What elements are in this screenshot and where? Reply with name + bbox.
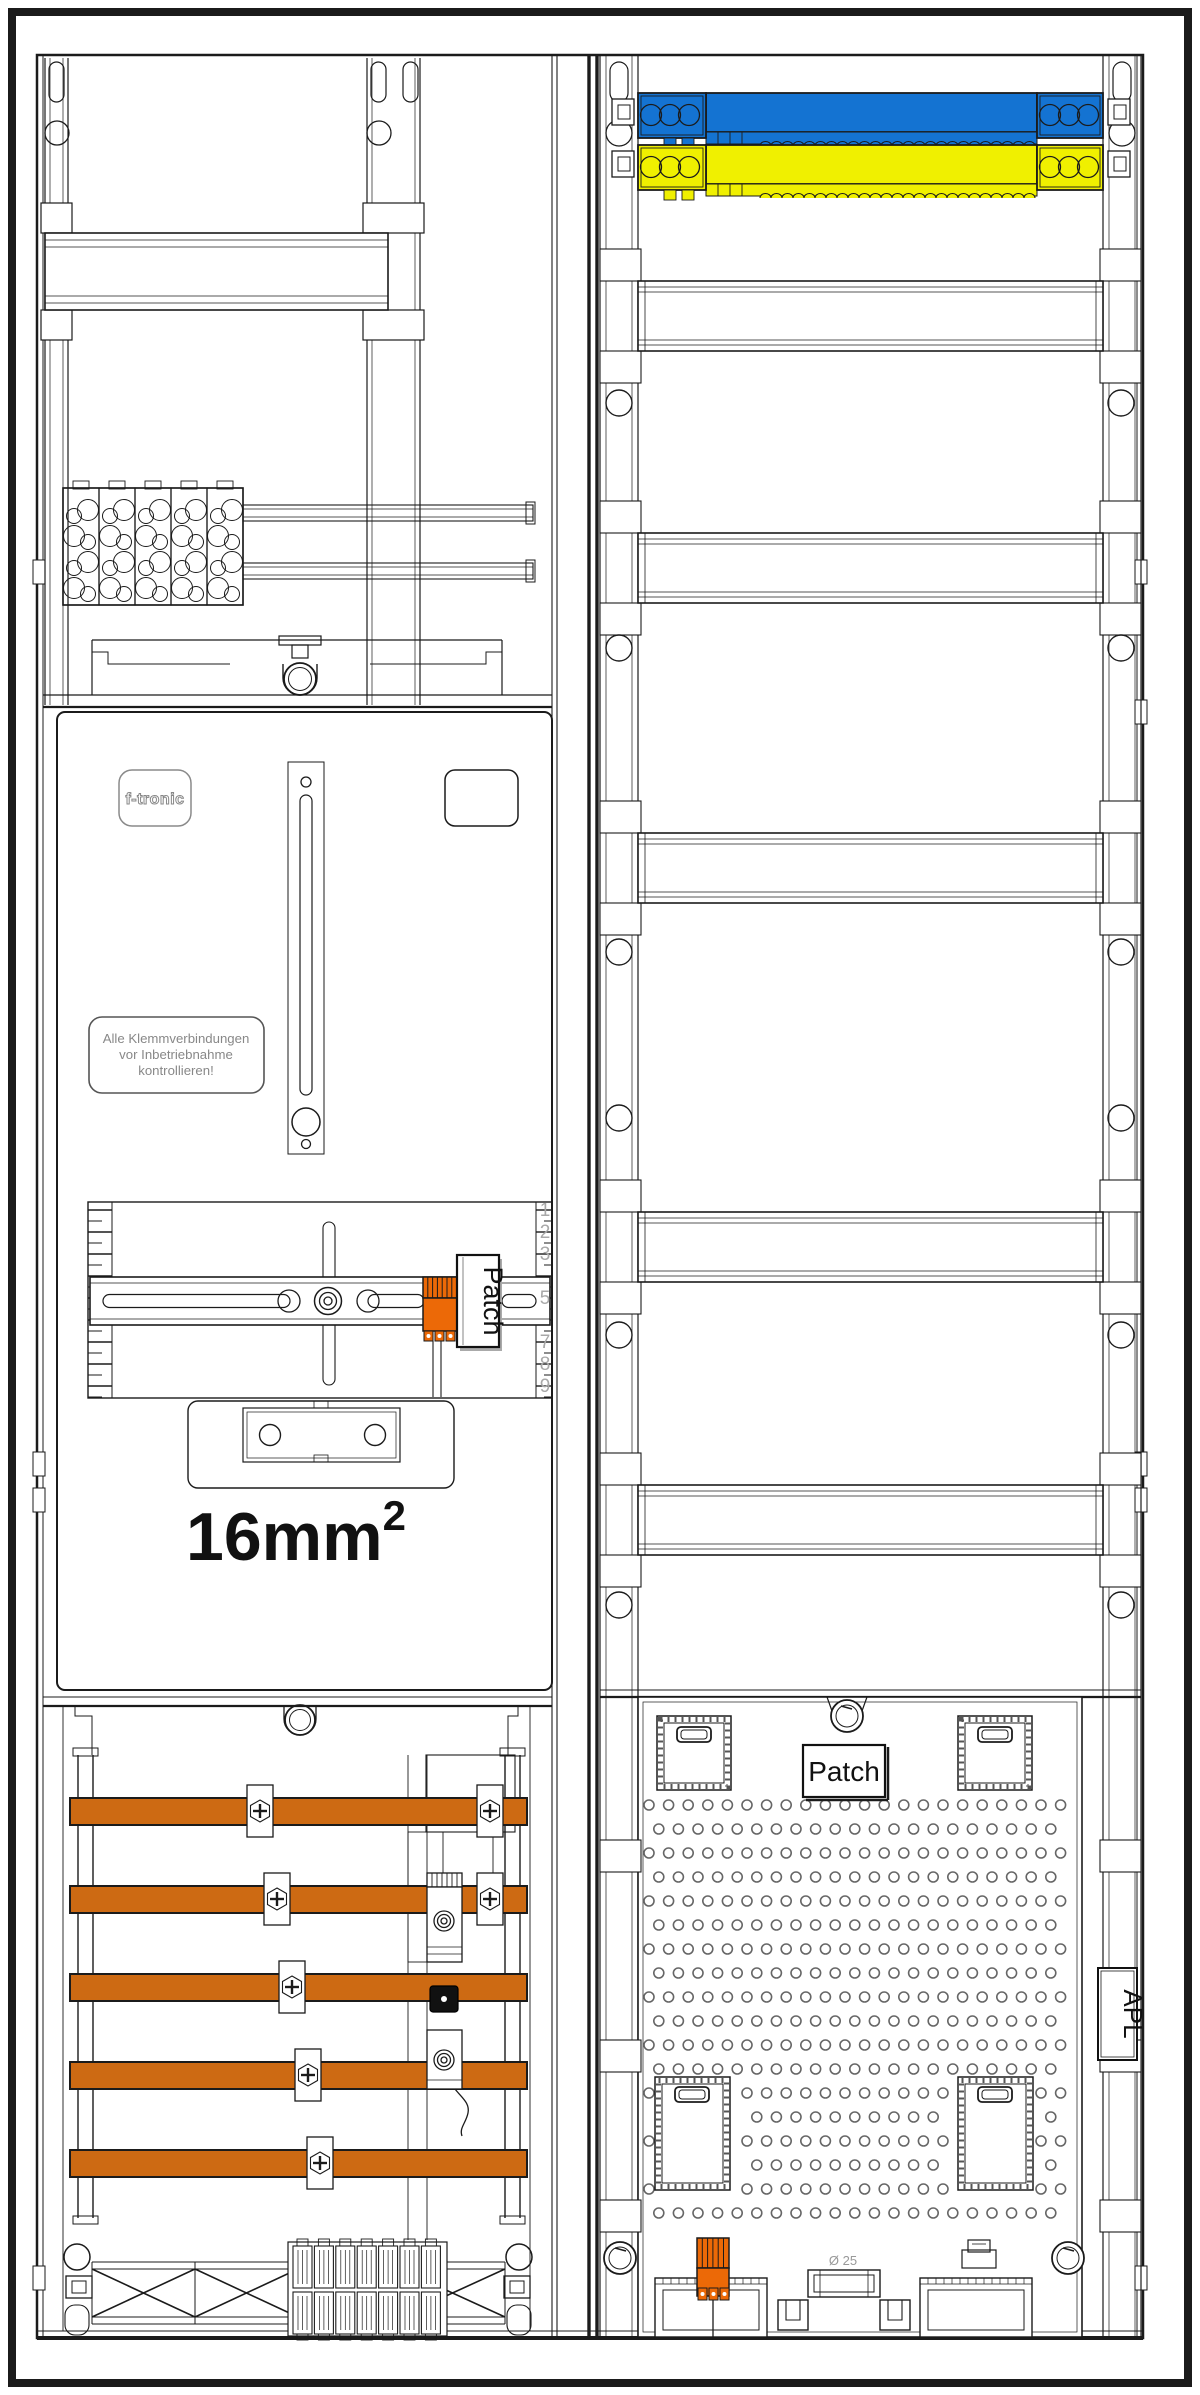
perforation-hole (644, 1800, 654, 1810)
perforation-hole (1007, 1920, 1017, 1930)
perforation-hole (928, 1824, 938, 1834)
perforation-hole (693, 2208, 703, 2218)
rail-hole (606, 1105, 632, 1131)
perforation-hole (1026, 1920, 1036, 1930)
terminal (357, 2292, 376, 2340)
perforation-hole (860, 2040, 870, 2050)
plate-cutout (657, 1716, 731, 1790)
perforation-hole (1026, 1824, 1036, 1834)
perforation-hole (1046, 2112, 1056, 2122)
perforation-hole (762, 2040, 772, 2050)
keyhole-slot (288, 762, 324, 1154)
din-rail-row (600, 1180, 1141, 1314)
perforation-hole (958, 1896, 968, 1906)
perforation-hole (869, 1968, 879, 1978)
rail-foot (1100, 1453, 1141, 1485)
perforation-hole (850, 1968, 860, 1978)
perforation-hole (791, 2208, 801, 2218)
perforation-hole (1036, 1992, 1046, 2002)
perforation-hole (742, 2136, 752, 2146)
perforation-hole (693, 1824, 703, 1834)
cover-bar (45, 233, 388, 310)
perforation-hole (673, 2208, 683, 2218)
perforation-hole (801, 2040, 811, 2050)
perforation-hole (967, 1968, 977, 1978)
perforation-hole (860, 2184, 870, 2194)
cross-section-label: 16mm2 (186, 1492, 406, 1575)
perforation-hole (644, 1944, 654, 1954)
perforation-hole (909, 1824, 919, 1834)
perforation-hole (997, 1992, 1007, 2002)
perforation-hole (762, 2088, 772, 2098)
terminal (314, 2292, 333, 2340)
rail-foot (600, 801, 641, 833)
perforation-hole (889, 1872, 899, 1882)
panel-recess (445, 770, 518, 826)
perforation-hole (781, 1896, 791, 1906)
perforation-hole (644, 1992, 654, 2002)
perforation-hole (928, 1968, 938, 1978)
perforation-hole (732, 2016, 742, 2026)
rail-hole (1108, 1322, 1134, 1348)
plate-cutout (958, 2077, 1033, 2190)
warning-note-line: kontrollieren! (138, 1063, 214, 1078)
perforation-hole (879, 1992, 889, 2002)
perforation-hole (899, 1848, 909, 1858)
rail-foot (363, 310, 424, 340)
rail-slot (371, 62, 386, 102)
rail-foot (600, 501, 641, 533)
perforation-hole (791, 2160, 801, 2170)
perforation-hole (683, 1848, 693, 1858)
perforation-hole (791, 1968, 801, 1978)
busbar-clamp (279, 1961, 305, 2013)
perforation-hole (811, 1920, 821, 1930)
perforation-hole (889, 1824, 899, 1834)
warning-note-line: Alle Klemmverbindungen (103, 1031, 250, 1046)
perforation-hole (830, 1920, 840, 1930)
ruler-number: 2 (540, 1222, 551, 1243)
rail-foot (363, 203, 424, 233)
perforation-hole (1026, 1968, 1036, 1978)
perforation-hole (732, 1920, 742, 1930)
perforation-hole (918, 2088, 928, 2098)
perforation-hole (1036, 1848, 1046, 1858)
meter-hanger-clamp (279, 636, 321, 695)
frame-latch (33, 1452, 45, 1476)
rail-foot (600, 1180, 641, 1212)
perforation-hole (830, 2064, 840, 2074)
rail-foot (1100, 603, 1141, 635)
perforation-hole (693, 1920, 703, 1930)
perforation-hole (958, 2040, 968, 2050)
perforation-hole (820, 1800, 830, 1810)
busbar-clamp (477, 1785, 503, 1837)
perforation-hole (811, 1872, 821, 1882)
bottom-knockout (920, 2278, 1032, 2337)
perforation-hole (762, 1800, 772, 1810)
perforation-hole (909, 2160, 919, 2170)
rail-hole (606, 939, 632, 965)
perforation-hole (664, 1944, 674, 1954)
frame-latch (33, 2266, 45, 2290)
perforation-hole (850, 1824, 860, 1834)
rail-hole (367, 121, 391, 145)
perforation-hole (693, 1872, 703, 1882)
perforation-hole (899, 1896, 909, 1906)
busbar-clamp (247, 1785, 273, 1837)
perforation-hole (1056, 1896, 1066, 1906)
perforation-hole (1007, 2016, 1017, 2026)
rail-hole (1108, 635, 1134, 661)
busbar-clamp (264, 1873, 290, 1925)
perforation-hole (752, 2112, 762, 2122)
perforation-hole (1046, 1824, 1056, 1834)
rail-slot (610, 62, 628, 102)
rail-hole (606, 635, 632, 661)
rail-slot (1113, 62, 1131, 102)
perforation-hole (771, 2016, 781, 2026)
perforation-hole (1056, 2088, 1066, 2098)
perforation-hole (752, 1872, 762, 1882)
perforation-hole (997, 1848, 1007, 1858)
perforation-hole (820, 1992, 830, 2002)
ruler-number: 8 (540, 1354, 551, 1375)
warning-note-line: vor Inbetriebnahme (119, 1047, 233, 1062)
corner-clamp (604, 2242, 636, 2274)
perforation-hole (869, 1824, 879, 1834)
perforation-hole (928, 2208, 938, 2218)
perforation-hole (869, 2016, 879, 2026)
perforation-hole (860, 1992, 870, 2002)
perforation-hole (909, 1872, 919, 1882)
perforation-hole (1026, 1872, 1036, 1882)
perforation-hole (1056, 2184, 1066, 2194)
perforation-hole (958, 1848, 968, 1858)
perforation-hole (781, 1992, 791, 2002)
perforation-hole (820, 2136, 830, 2146)
perforation-hole (811, 2064, 821, 2074)
perforation-hole (801, 1848, 811, 1858)
perforation-hole (860, 1800, 870, 1810)
perforation-hole (771, 2208, 781, 2218)
perforation-hole (693, 2016, 703, 2026)
perforation-hole (703, 1800, 713, 1810)
perforation-hole (997, 1800, 1007, 1810)
perforation-hole (791, 2016, 801, 2026)
perforation-hole (948, 1824, 958, 1834)
perforation-hole (850, 2112, 860, 2122)
perforation-hole (654, 2016, 664, 2026)
perforation-hole (1016, 1848, 1026, 1858)
frame-latch (33, 560, 45, 584)
perforation-hole (762, 2184, 772, 2194)
perforation-hole (879, 2040, 889, 2050)
perforation-hole (830, 2016, 840, 2026)
perforation-hole (752, 1824, 762, 1834)
perforation-hole (771, 1920, 781, 1930)
perforation-hole (781, 1800, 791, 1810)
perforation-hole (830, 2160, 840, 2170)
perforation-hole (1056, 1848, 1066, 1858)
rail-hole (1108, 1592, 1134, 1618)
rail-foot (600, 249, 641, 281)
perforation-hole (840, 1944, 850, 1954)
perforation-hole (879, 2184, 889, 2194)
perforation-hole (644, 2184, 654, 2194)
perforation-hole (909, 2208, 919, 2218)
perforation-hole (889, 1920, 899, 1930)
perforation-hole (938, 1944, 948, 1954)
mounting-bracket (188, 1401, 454, 1488)
apl-label-text: APL (1118, 1989, 1148, 2038)
perforation-hole (654, 1920, 664, 1930)
perforation-hole (722, 1848, 732, 1858)
terminal (336, 2239, 355, 2288)
perforation-hole (801, 1944, 811, 1954)
perforation-hole (840, 2184, 850, 2194)
perforation-hole (732, 2064, 742, 2074)
perforation-hole (664, 1848, 674, 1858)
din-rail-row (600, 801, 1141, 935)
perforation-hole (713, 2064, 723, 2074)
right-column: PatchAPLØ 25 (600, 55, 1148, 2337)
perforation-hole (1016, 1896, 1026, 1906)
perforation-hole (781, 2136, 791, 2146)
perforation-hole (938, 2184, 948, 2194)
perforation-hole (997, 1944, 1007, 1954)
perforation-hole (1007, 2064, 1017, 2074)
perforation-hole (967, 2208, 977, 2218)
perforation-hole (683, 1800, 693, 1810)
perforation-hole (889, 2016, 899, 2026)
busbar-clip (1108, 151, 1130, 177)
rail-foot (1100, 501, 1141, 533)
rail-foot (1100, 1180, 1141, 1212)
perforation-hole (967, 2016, 977, 2026)
perforation-hole (1026, 2064, 1036, 2074)
perforation-hole (987, 2208, 997, 2218)
perforation-hole (742, 1800, 752, 1810)
perforation-hole (703, 1992, 713, 2002)
perforation-hole (722, 1944, 732, 1954)
perforation-hole (1036, 1896, 1046, 1906)
perforation-hole (918, 2184, 928, 2194)
gauge-mechanism: Patch1235789 (88, 1200, 552, 1398)
meter-terminal-blocks (63, 481, 243, 605)
perforation-hole (850, 1872, 860, 1882)
perforation-hole (771, 1824, 781, 1834)
gauge-orange-device (423, 1277, 457, 1397)
perforation-hole (987, 2064, 997, 2074)
rail-foot (1100, 2200, 1141, 2232)
perforation-hole (771, 1872, 781, 1882)
patch-label-right-text: Patch (808, 1756, 880, 1787)
perforation-hole (1046, 2064, 1056, 2074)
perforation-hole (918, 1992, 928, 2002)
din-rail-row (600, 501, 1141, 635)
perforation-hole (693, 1968, 703, 1978)
perforation-hole (830, 1872, 840, 1882)
perforation-hole (850, 2064, 860, 2074)
terminal (421, 2292, 440, 2340)
busbar-yellow (638, 145, 1103, 200)
perforation-hole (918, 2136, 928, 2146)
perforation-hole (869, 2112, 879, 2122)
perforation-hole (811, 2016, 821, 2026)
rail-slot (403, 62, 418, 102)
clip (504, 2276, 530, 2298)
perforation-hole (977, 1848, 987, 1858)
perforation-hole (860, 1944, 870, 1954)
perforation-hole (840, 1992, 850, 2002)
perforation-hole (987, 1968, 997, 1978)
perforation-hole (811, 1968, 821, 1978)
perforation-hole (948, 1920, 958, 1930)
perforation-hole (713, 1968, 723, 1978)
orange-busbar (70, 1798, 527, 1825)
rail-hole (1108, 390, 1134, 416)
meter-panel: f-tronicAlle Klemmverbindungenvor Inbetr… (57, 712, 552, 1690)
perforation-hole (860, 1896, 870, 1906)
perforation-hole (732, 1968, 742, 1978)
perforation-hole (771, 2064, 781, 2074)
perforation-hole (977, 1992, 987, 2002)
perforation-hole (771, 2112, 781, 2122)
cabinet-drawing: f-tronicAlle Klemmverbindungenvor Inbetr… (0, 0, 1200, 2395)
perforation-hole (801, 1800, 811, 1810)
perforation-hole (752, 2064, 762, 2074)
busbar-clip (612, 151, 634, 177)
perforation-hole (1046, 1920, 1056, 1930)
perforation-hole (732, 1872, 742, 1882)
perforation-hole (654, 2208, 664, 2218)
perforation-hole (732, 1824, 742, 1834)
perforation-hole (713, 1824, 723, 1834)
perforation-hole (977, 1800, 987, 1810)
perforation-hole (977, 1944, 987, 1954)
perforation-hole (1046, 2160, 1056, 2170)
perforation-hole (1036, 1944, 1046, 1954)
rail-hole (45, 121, 69, 145)
perforation-hole (899, 1944, 909, 1954)
perforation-hole (791, 2112, 801, 2122)
perforation-hole (752, 1968, 762, 1978)
perforation-hole (811, 1824, 821, 1834)
frame-latch (33, 1488, 45, 1512)
perforation-hole (909, 1920, 919, 1930)
rail-foot (600, 351, 641, 383)
left-bottom-section (43, 1697, 552, 2340)
perforation-hole (742, 1896, 752, 1906)
perforation-hole (938, 2136, 948, 2146)
rail-foot (1100, 351, 1141, 383)
perforation-hole (977, 1896, 987, 1906)
rail-foot (41, 203, 72, 233)
perforation-hole (811, 2208, 821, 2218)
terminal (357, 2239, 376, 2288)
perforation-hole (781, 2088, 791, 2098)
perforation-hole (683, 1896, 693, 1906)
perforation-hole (948, 2016, 958, 2026)
ruler-number: 1 (540, 1200, 551, 1221)
perforation-hole (928, 1872, 938, 1882)
busbar-clip (1108, 99, 1130, 125)
perforation-hole (938, 1992, 948, 2002)
main-terminal-device (427, 1873, 468, 2136)
perforation-hole (664, 1992, 674, 2002)
perforation-hole (673, 2016, 683, 2026)
corner-clamp (1052, 2242, 1084, 2274)
rail-foot (1100, 1282, 1141, 1314)
brand-logo: f-tronic (119, 770, 191, 826)
perforation-hole (909, 2064, 919, 2074)
perforation-hole (1036, 2040, 1046, 2050)
perforation-hole (967, 1824, 977, 1834)
perforation-hole (820, 1944, 830, 1954)
plate-top-clamp (831, 1700, 863, 1732)
perforation-hole (673, 1968, 683, 1978)
perforation-hole (987, 2016, 997, 2026)
terminal (293, 2239, 312, 2288)
perforation-hole (820, 2184, 830, 2194)
perforation-hole (742, 2184, 752, 2194)
perforation-hole (830, 2112, 840, 2122)
perforation-hole (693, 2064, 703, 2074)
perforation-hole (928, 1920, 938, 1930)
perforation-hole (879, 1848, 889, 1858)
perforation-hole (1007, 2208, 1017, 2218)
perforation-hole (987, 1920, 997, 1930)
rail-foot (1100, 903, 1141, 935)
ruler-number: 7 (540, 1332, 551, 1353)
perforation-hole (840, 2136, 850, 2146)
rail-foot (600, 1453, 641, 1485)
perforation-hole (918, 1944, 928, 1954)
perforation-hole (811, 2160, 821, 2170)
perforation-hole (752, 1920, 762, 1930)
perforation-hole (1007, 1824, 1017, 1834)
perforation-hole (879, 1800, 889, 1810)
perforation-hole (1056, 1992, 1066, 2002)
perforation-hole (644, 2040, 654, 2050)
perforation-hole (889, 2208, 899, 2218)
perforation-hole (830, 2208, 840, 2218)
perforation-hole (1046, 2016, 1056, 2026)
warning-note: Alle Klemmverbindungenvor Inbetriebnahme… (89, 1017, 264, 1093)
perforation-hole (644, 2136, 654, 2146)
patch-label-left-text: Patch (478, 1266, 508, 1335)
perforation-hole (820, 1896, 830, 1906)
perforation-hole (1007, 1968, 1017, 1978)
rail-hole (606, 1322, 632, 1348)
perforation-hole (918, 1896, 928, 1906)
perforation-hole (958, 1992, 968, 2002)
rail-foot (1100, 1840, 1141, 1872)
perforation-hole (644, 1896, 654, 1906)
perforation-hole (850, 2016, 860, 2026)
perforation-hole (967, 2064, 977, 2074)
perforation-hole (840, 1800, 850, 1810)
perforation-hole (713, 1872, 723, 1882)
terminal (293, 2292, 312, 2340)
perforation-hole (742, 1848, 752, 1858)
perforation-hole (899, 2136, 909, 2146)
rail-hole (1108, 1105, 1134, 1131)
busbar-clamp (307, 2137, 333, 2189)
brand-label: f-tronic (125, 791, 184, 808)
perforation-hole (830, 1824, 840, 1834)
